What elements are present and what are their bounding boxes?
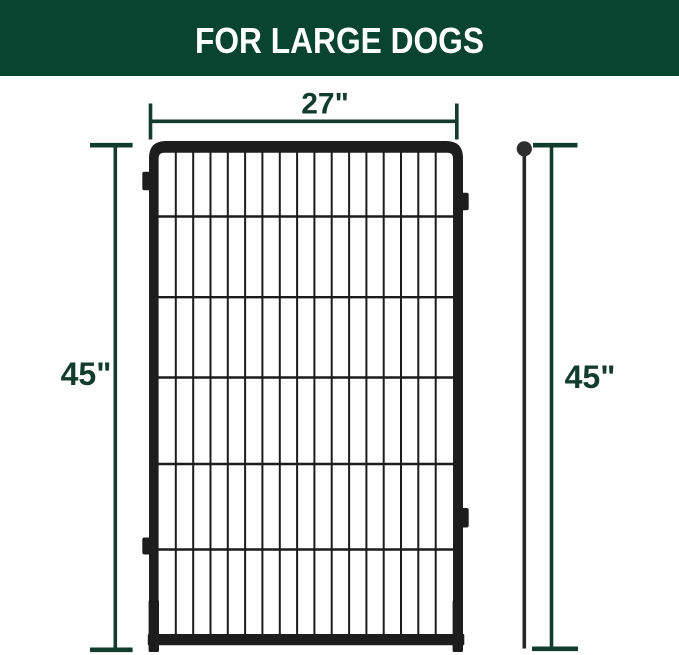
svg-text:27": 27" [301,88,349,121]
svg-text:FOR LARGE DOGS: FOR LARGE DOGS [195,20,484,61]
svg-text:45": 45" [61,356,112,392]
svg-text:45": 45" [565,359,616,395]
